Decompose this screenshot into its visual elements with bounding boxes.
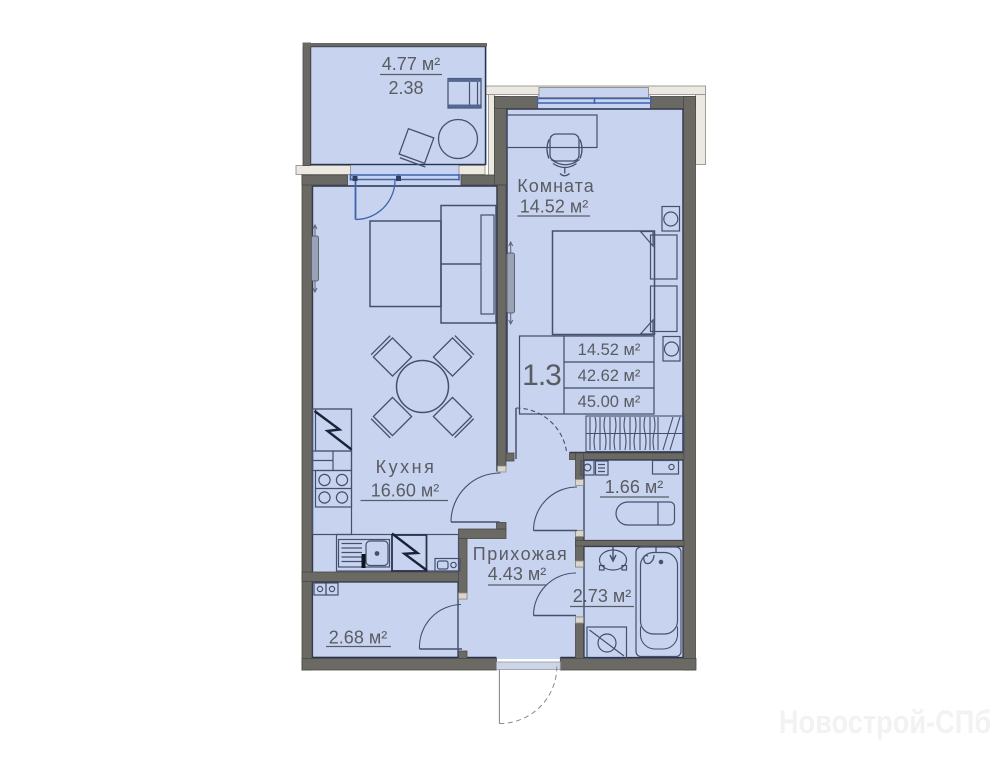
svg-text:2.68 м²: 2.68 м² (329, 628, 387, 648)
svg-text:14.52 м²: 14.52 м² (520, 197, 588, 217)
svg-text:Комната: Комната (517, 176, 594, 196)
svg-text:Кухня: Кухня (376, 457, 437, 477)
svg-text:1.66 м²: 1.66 м² (605, 477, 663, 497)
svg-text:4.77 м²: 4.77 м² (382, 54, 440, 74)
svg-text:2.73 м²: 2.73 м² (573, 586, 631, 606)
svg-text:4.43 м²: 4.43 м² (488, 564, 546, 584)
svg-text:1.3: 1.3 (522, 359, 561, 392)
svg-text:42.62 м²: 42.62 м² (578, 367, 641, 385)
svg-text:Прихожая: Прихожая (473, 544, 568, 564)
svg-text:Новострой-СПб: Новострой-СПб (779, 705, 991, 741)
svg-text:2.38: 2.38 (388, 78, 423, 98)
svg-text:16.60 м²: 16.60 м² (371, 481, 439, 501)
svg-text:14.52 м²: 14.52 м² (578, 341, 641, 359)
svg-text:45.00 м²: 45.00 м² (578, 393, 641, 411)
